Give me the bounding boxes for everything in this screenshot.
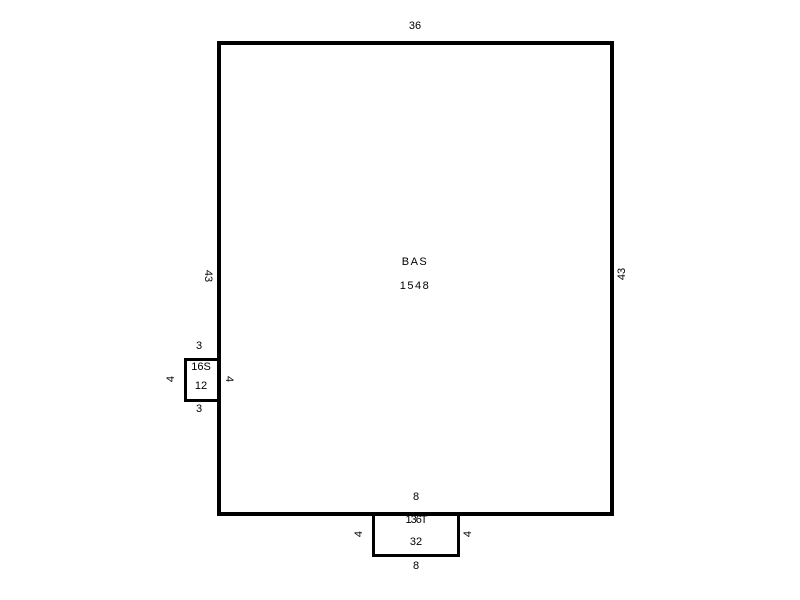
dim-label-136t-top: 8 xyxy=(406,491,426,503)
area-code-136t: 136T xyxy=(394,514,438,526)
dim-label-136t-bottom: 8 xyxy=(406,560,426,572)
area-code-bas: BAS xyxy=(385,256,445,268)
dim-label-bas-top: 36 xyxy=(405,20,425,32)
dim-label-16s-bottom: 3 xyxy=(189,403,209,415)
area-size-136t: 32 xyxy=(394,536,438,548)
area-code-16s: 16S xyxy=(185,361,217,373)
dim-label-16s-right: 4 xyxy=(221,369,235,389)
floorplan-sketch-canvas: 36 43 43 BAS 1548 3 3 4 4 16S 12 8 8 4 4… xyxy=(0,0,800,600)
area-outline-bas xyxy=(217,41,614,516)
area-size-bas: 1548 xyxy=(385,280,445,292)
dim-label-136t-left: 4 xyxy=(353,524,367,544)
dim-label-136t-right: 4 xyxy=(462,524,476,544)
area-size-16s: 12 xyxy=(185,380,217,392)
dim-label-16s-left: 4 xyxy=(165,369,179,389)
dim-label-16s-top: 3 xyxy=(189,340,209,352)
dim-label-bas-right: 43 xyxy=(616,264,630,284)
dim-label-bas-left: 43 xyxy=(200,266,214,286)
